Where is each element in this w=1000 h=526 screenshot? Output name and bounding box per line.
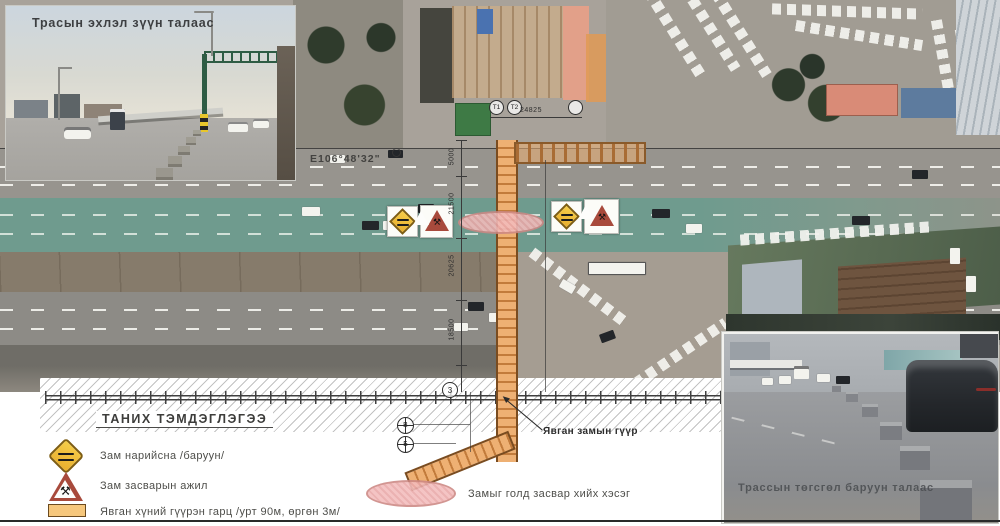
photo-route-end: Трассын төгсгөл баруун талаас — [722, 332, 998, 523]
street-light-pole — [58, 68, 60, 120]
warehouse-roof — [452, 6, 564, 98]
dark-suv — [906, 360, 998, 432]
suv-taillight — [976, 388, 996, 391]
triangle-inner — [578, 205, 594, 219]
car — [362, 221, 379, 230]
dim-label-span: 24825 — [520, 107, 542, 114]
bridge-label-text: Явган замын гүүр — [543, 426, 638, 437]
green-kiosk — [455, 103, 491, 136]
car — [228, 122, 248, 132]
bus — [110, 109, 125, 130]
bridge-label: Явган замын гүүр — [543, 426, 638, 437]
dim-tick — [456, 300, 467, 301]
car — [468, 302, 484, 311]
road-surface — [6, 118, 295, 180]
coordinate-text: E106°48'32" — [310, 153, 381, 165]
sheet-edge-line — [0, 520, 1000, 522]
worker-icon: ⚒ — [60, 484, 71, 498]
narrows-marks-icon — [561, 214, 573, 216]
diamond-icon — [389, 208, 416, 235]
car — [652, 209, 670, 218]
road-work-sign: ⚒ — [46, 470, 86, 504]
north-trees — [293, 0, 403, 150]
triangle-inner — [413, 211, 429, 225]
car — [817, 374, 830, 382]
construction-zone-line — [545, 160, 546, 392]
median-block — [900, 446, 930, 470]
photo-caption: Трассын төгсгөл баруун талаас — [738, 482, 934, 494]
car — [836, 376, 850, 384]
median-block — [832, 384, 841, 392]
orange-yard — [586, 34, 606, 102]
dimension-line-vertical — [461, 140, 462, 392]
dim-tick — [456, 238, 467, 239]
pedestrian-overpass-bar — [48, 504, 86, 517]
dim-label-21500: 21500 — [449, 186, 456, 222]
building-block — [730, 342, 770, 376]
pedestrian-bridge-vertical — [496, 140, 518, 462]
dim-label-5000: 5000 — [449, 139, 456, 175]
dim-tick — [456, 140, 467, 141]
median-block — [156, 168, 173, 180]
car — [762, 378, 773, 385]
connector-line — [470, 392, 471, 452]
dim-tick — [456, 365, 467, 366]
car — [253, 119, 269, 128]
orange-building — [826, 84, 898, 116]
car — [302, 207, 320, 216]
marker-end-circle — [568, 100, 583, 115]
coordinate-label: E106°48'32" — [310, 153, 381, 165]
survey-marker-b1-label: В — [403, 422, 408, 429]
railway-line — [45, 391, 722, 404]
median-block — [168, 156, 182, 167]
worker-icon: ⚒ — [598, 213, 606, 223]
marker-t1-label: Т1 — [493, 104, 501, 111]
road-work-sign: ⚒ — [584, 199, 619, 234]
car — [852, 216, 870, 225]
legend-item-label: Зам нарийсна /баруун/ — [100, 450, 224, 462]
median-block — [193, 130, 201, 136]
connector-line — [414, 443, 456, 444]
car — [966, 276, 976, 292]
road-narrows-sign — [46, 440, 86, 474]
roadside-berm — [277, 46, 295, 180]
railway-point-label: 3 — [448, 386, 452, 395]
dim-label-18500: 18500 — [449, 312, 456, 348]
narrows-marks-icon — [397, 219, 409, 221]
road-repair-plan-sheet: 3 E106°48'32" ⚒ ⚒ 5000 21500 20625 18500… — [0, 0, 1000, 526]
pedestrian-bridge-walkway — [514, 142, 646, 164]
legend-item-label: Явган хүний гүүрэн гарц /урт 90м, өргөн … — [100, 506, 340, 518]
legend-title-text: ТАНИХ ТЭМДЭГЛЭГЭЭ — [102, 412, 267, 426]
survey-marker-b1: В — [397, 417, 414, 434]
photo-caption: Трасын эхлэл зүүн талаас — [32, 16, 214, 30]
gantry-post-stripes — [200, 114, 208, 132]
median-repair-zone — [458, 211, 544, 234]
survey-marker-b2-label: Б — [403, 441, 408, 448]
dim-tick — [456, 176, 467, 177]
marker-t1: Т1 — [489, 100, 504, 115]
marker-t2-label: Т2 — [511, 104, 519, 111]
overpass-beam — [730, 360, 802, 368]
car — [686, 224, 702, 233]
market-stalls — [956, 0, 1000, 135]
street-light-arm — [194, 11, 214, 13]
median-block — [862, 404, 878, 417]
light-roof-building — [742, 259, 802, 320]
diamond-icon — [553, 203, 580, 230]
photo-route-start: Трасын эхлэл зүүн талаас — [6, 6, 295, 180]
diamond-icon — [48, 438, 85, 475]
dim-label-20625: 20625 — [449, 248, 456, 284]
worker-icon: ⚒ — [433, 218, 441, 228]
coordinate-marker-icon — [392, 148, 401, 157]
dark-building — [960, 334, 998, 358]
car — [912, 170, 928, 179]
median-block — [880, 422, 902, 440]
car — [64, 127, 91, 139]
legend-item-label: Зам засварын ажил — [100, 480, 208, 492]
car — [779, 376, 791, 384]
median-block — [178, 146, 190, 155]
legend-title: ТАНИХ ТЭМДЭГЛЭГЭЭ — [96, 411, 273, 428]
street-light-arm — [58, 67, 72, 69]
median-repair-ellipse — [366, 480, 456, 507]
car — [950, 248, 960, 264]
connector-line — [414, 424, 470, 425]
blue-roof — [477, 9, 493, 34]
bus — [588, 262, 646, 275]
median-block — [186, 137, 196, 145]
van — [794, 366, 809, 379]
railway-point-marker: 3 — [442, 382, 458, 398]
warehouse-dark-roof — [420, 8, 454, 103]
blue-building — [901, 88, 957, 118]
dimension-line-top — [490, 117, 582, 118]
median-block — [846, 392, 858, 402]
survey-marker-b2: Б — [397, 436, 414, 453]
legend-item-label: Замыг голд засвар хийх хэсэг — [468, 488, 630, 500]
